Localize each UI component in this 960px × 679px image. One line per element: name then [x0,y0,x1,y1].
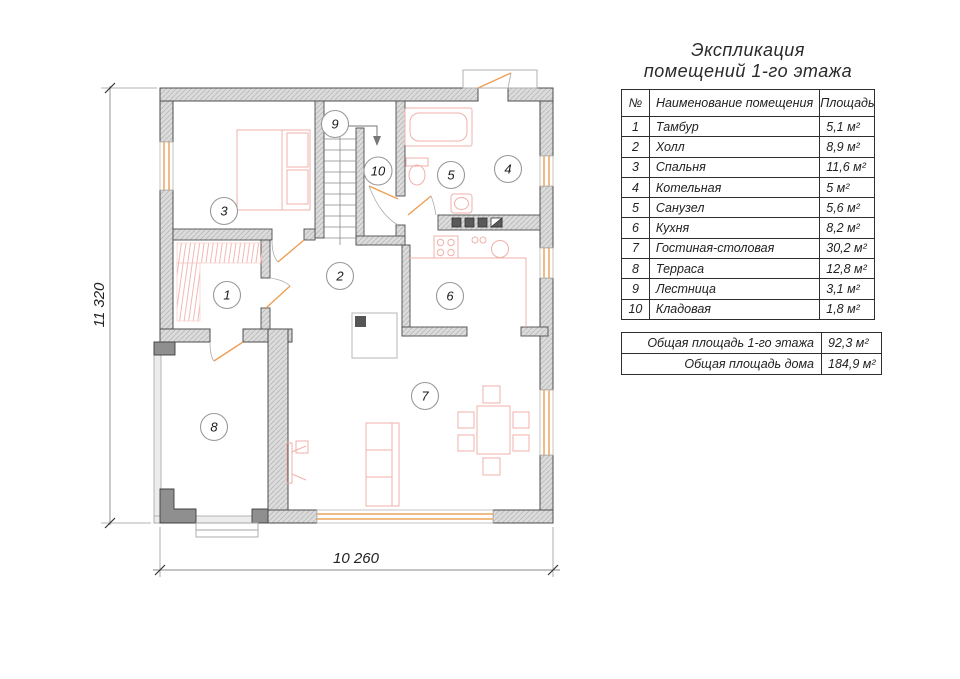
table-row: 9 Лестница 3,1 м² [622,279,875,299]
window-east-living [540,390,553,455]
summary-value: 92,3 м² [822,332,882,353]
screenshot-root: 1 2 3 4 5 6 7 8 [0,0,960,679]
row-name: Терраса [649,259,819,279]
svg-text:10: 10 [371,164,386,179]
table-row: 2 Холл 8,9 м² [622,137,875,157]
row-no: 3 [622,157,650,177]
room-label-5: 5 [438,162,465,189]
header-no: № [622,90,650,117]
row-area: 1,8 м² [820,299,875,319]
svg-text:2: 2 [335,269,344,284]
row-name: Спальня [649,157,819,177]
explication-block: Экспликация помещений 1-го этажа № Наиме… [621,40,875,375]
dimension-bottom: 10 260 [153,527,560,577]
svg-text:7: 7 [421,389,429,404]
row-no: 4 [622,177,650,197]
door-storage [369,186,398,225]
explication-title-line2: помещений 1-го этажа [621,61,875,82]
summary-label: Общая площадь 1-го этажа [622,332,822,353]
room-label-9: 9 [322,111,349,138]
row-no: 7 [622,238,650,258]
svg-text:9: 9 [331,117,338,132]
explication-table: № Наименование помещения Площадь 1 Тамбу… [621,89,875,320]
room-label-8: 8 [201,414,228,441]
stairs [324,126,381,245]
row-name: Санузел [649,198,819,218]
svg-text:3: 3 [220,204,228,219]
floor-plan: 1 2 3 4 5 6 7 8 [0,0,600,679]
room-label-6: 6 [437,283,464,310]
svg-text:6: 6 [446,289,454,304]
entry-porch [463,70,537,88]
header-name: Наименование помещения [649,90,819,117]
window-west-bedroom [160,142,173,190]
door-tambour-exterior [210,342,243,361]
room-label-2: 2 [327,263,354,290]
table-row: 1 Тамбур 5,1 м² [622,117,875,137]
dimension-width-label: 10 260 [333,550,380,567]
summary-label: Общая площадь дома [622,353,822,374]
svg-text:4: 4 [504,162,511,177]
summary-value: 184,9 м² [822,353,882,374]
row-area: 5 м² [820,177,875,197]
door-entry-top [478,73,511,88]
row-no: 5 [622,198,650,218]
room-label-1: 1 [214,282,241,309]
window-east-boiler [540,156,553,186]
window-south-living [317,510,493,523]
row-no: 10 [622,299,650,319]
table-row: 4 Котельная 5 м² [622,177,875,197]
row-name: Гостиная-столовая [649,238,819,258]
header-area: Площадь [820,90,875,117]
window-east-kitchen [540,248,553,278]
row-area: 5,6 м² [820,198,875,218]
row-no: 1 [622,117,650,137]
svg-text:8: 8 [210,420,218,435]
row-area: 8,9 м² [820,137,875,157]
row-no: 9 [622,279,650,299]
room-label-3: 3 [211,198,238,225]
door-bathroom [408,196,436,215]
explication-title: Экспликация помещений 1-го этажа [621,40,875,82]
row-area: 5,1 м² [820,117,875,137]
dimension-height-label: 11 320 [91,282,108,327]
door-tambour-hall [266,278,290,308]
room-label-4: 4 [495,156,522,183]
row-no: 2 [622,137,650,157]
summary-row: Общая площадь 1-го этажа 92,3 м² [622,332,882,353]
fireplace-cabinet [352,313,397,358]
row-name: Лестница [649,279,819,299]
table-row: 3 Спальня 11,6 м² [622,157,875,177]
furniture-bedroom [237,130,310,210]
table-row: 7 Гостиная-столовая 30,2 м² [622,238,875,258]
room-label-10: 10 [364,157,392,185]
furniture-bathroom [405,108,472,213]
table-header-row: № Наименование помещения Площадь [622,90,875,117]
svg-text:5: 5 [447,168,455,183]
dimension-left: 11 320 [91,83,157,528]
row-area: 30,2 м² [820,238,875,258]
svg-text:1: 1 [223,288,230,303]
row-name: Кладовая [649,299,819,319]
row-area: 12,8 м² [820,259,875,279]
door-hall-bedroom [272,240,304,262]
row-no: 6 [622,218,650,238]
row-area: 8,2 м² [820,218,875,238]
row-area: 3,1 м² [820,279,875,299]
furniture-living [287,386,529,506]
row-no: 8 [622,259,650,279]
table-row: 6 Кухня 8,2 м² [622,218,875,238]
row-name: Кухня [649,218,819,238]
row-area: 11,6 м² [820,157,875,177]
row-name: Холл [649,137,819,157]
coat-rack [177,243,262,321]
explication-title-line1: Экспликация [621,40,875,61]
room-label-7: 7 [412,383,439,410]
table-row: 8 Терраса 12,8 м² [622,259,875,279]
table-row: 10 Кладовая 1,8 м² [622,299,875,319]
table-row: 5 Санузел 5,6 м² [622,198,875,218]
row-name: Тамбур [649,117,819,137]
summary-row: Общая площадь дома 184,9 м² [622,353,882,374]
furniture-kitchen [408,236,526,327]
summary-table: Общая площадь 1-го этажа 92,3 м² Общая п… [621,332,882,375]
row-name: Котельная [649,177,819,197]
terrace-steps [196,523,258,537]
